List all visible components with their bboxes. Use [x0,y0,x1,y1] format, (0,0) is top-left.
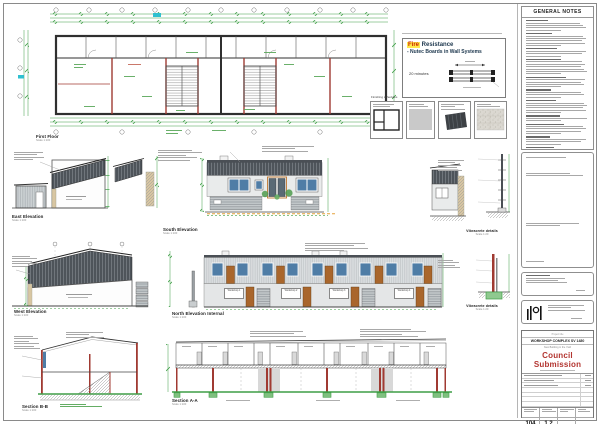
finishing-heading: Finishing schedules [371,95,397,99]
title-block-values: 104 1.2 [522,417,593,424]
project-title: WORKSHOP COMPLEX SV 1480 [522,337,593,345]
section-bb-notes-bottom [60,404,104,409]
north-elevation-notes [305,243,373,253]
general-notes-box: GENERAL NOTES [521,6,594,150]
retaining-stack [136,282,148,307]
plan-dimensions-bottom [50,118,388,126]
section-bb-label: Section B-B Scale 1:100 [22,404,48,412]
extra-cell [576,418,593,424]
finishing-panel-texture [474,101,507,139]
fire-duration: 20 minutes [409,71,429,76]
east-elevation-notes [14,152,44,162]
section-bb-notes-top [66,332,106,339]
first-floor-label: First Floor Scale 1:100 [36,134,59,142]
upper-cladding [207,163,322,176]
stair-shaft [258,368,280,392]
columns [176,368,446,392]
drawing-status: Council Submission [522,351,593,369]
section-aa-notes-top2 [360,329,426,339]
stair [78,372,110,394]
vibracrete-2-notes [438,260,462,270]
plant [285,189,292,196]
north-elevation-label: North Elevation Internal Scale 1:100 [172,311,224,319]
revision-number: 1.2 [540,418,558,424]
extra-cell [558,418,576,424]
column-divider [517,4,518,418]
west-elevation-label: West Elevation Scale 1:100 [14,309,47,317]
wall-texture-swatch [477,109,504,130]
project-subtitle: New Building in the Yard [522,346,593,349]
plaster-finish-swatch [409,109,432,130]
unit-plate: Workshop 4 [394,288,414,299]
stair-shaft [371,368,393,392]
architect-logo [526,305,544,321]
section-aa [166,330,456,408]
grid-bubbles [53,242,124,246]
west-elevation [10,240,150,318]
south-elevation [110,146,340,230]
unit-plate: Workshop 3 [329,288,349,299]
plant [274,194,279,199]
shed-door [36,192,43,208]
finishing-panel-plaster [406,101,435,139]
south-elevation-notes-left [158,150,202,162]
architect-logo-box [521,300,594,324]
windows [212,263,423,276]
unit-plate: Workshop 2 [281,288,301,299]
highlight-marker [18,75,24,79]
finishing-panels [370,101,507,139]
fire-box-top-note [402,33,502,34]
section-bb-notes [14,336,40,350]
footing-green [486,292,502,299]
general-notes-title: GENERAL NOTES [522,7,593,18]
address-box [521,272,594,296]
finishing-panel-roof [438,101,471,139]
footings [174,393,449,398]
first-floor-plan [16,6,404,140]
title-block: Project title WORKSHOP COMPLEX SV 1480 N… [521,330,594,418]
signature-box [521,152,594,268]
west-elevation-notes [12,256,40,268]
section-aa-label: Section A-A Scale 1:100 [172,398,198,406]
wall-section-fragment [113,156,159,208]
title-block-headers [522,407,593,417]
south-elevation-label: South Elevation Scale 1:100 [163,227,198,235]
fire-resistance-box: Fire Resistance - Nutec Boards in Wall S… [402,38,506,98]
fire-title: Fire Resistance [407,42,501,48]
east-elevation-label: East Elevation Scale 1:100 [12,214,43,222]
project-title-label: Project title [522,333,593,336]
window-strip [43,352,46,368]
floor-slab [176,365,446,368]
window-schedule-diagram [373,109,400,131]
revision-table [522,373,593,407]
general-notes-body [522,18,593,150]
fire-subtitle: - Nutec Boards in Wall Systems [407,49,501,55]
section-aa-notes-top [250,331,306,338]
fire-wall-detail [441,59,503,95]
roof-sheeting-sample [441,111,468,130]
drawing-sheet: First Floor Scale 1:100 East Elevation S… [0,0,600,424]
unit-plate: Workshop 1 [224,288,244,299]
finishing-panel-windows [370,101,403,139]
plan-dimensions-top [50,12,388,24]
drawing-scale: Scale 1:100 [36,139,59,142]
plan-annotation-red [128,64,141,65]
vibracrete-2-label: Vibracrete details Scale 1:20 [452,304,512,311]
approval-signature-area [526,223,579,228]
vibracrete-1-notes [438,160,464,172]
pole-red [492,254,495,292]
plant [262,191,268,197]
south-building [205,156,336,216]
pole [501,154,503,212]
highlight-marker [153,13,161,17]
sheet-number: 104 [522,418,540,424]
client-signature-area [526,173,583,178]
louvre-band [291,197,319,211]
fire-keyword: Fire [407,42,420,48]
south-elevation-notes-top [262,146,314,153]
vibracrete-1-label: Vibracrete details Scale 1:20 [452,229,512,236]
